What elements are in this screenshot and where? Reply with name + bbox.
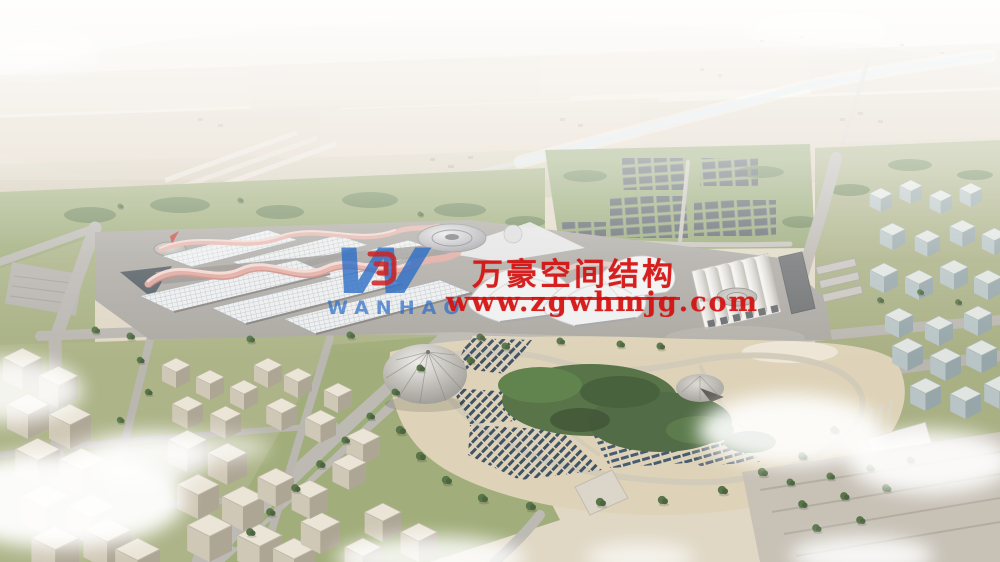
logo-w-glyph: W bbox=[332, 236, 432, 302]
aerial-rendering: W WANHAO 万豪空间结构 www.zgwhmjg.com bbox=[0, 0, 1000, 562]
watermark-logo: W bbox=[330, 236, 440, 302]
watermark-website-url: www.zgwhmjg.com bbox=[446, 287, 759, 318]
